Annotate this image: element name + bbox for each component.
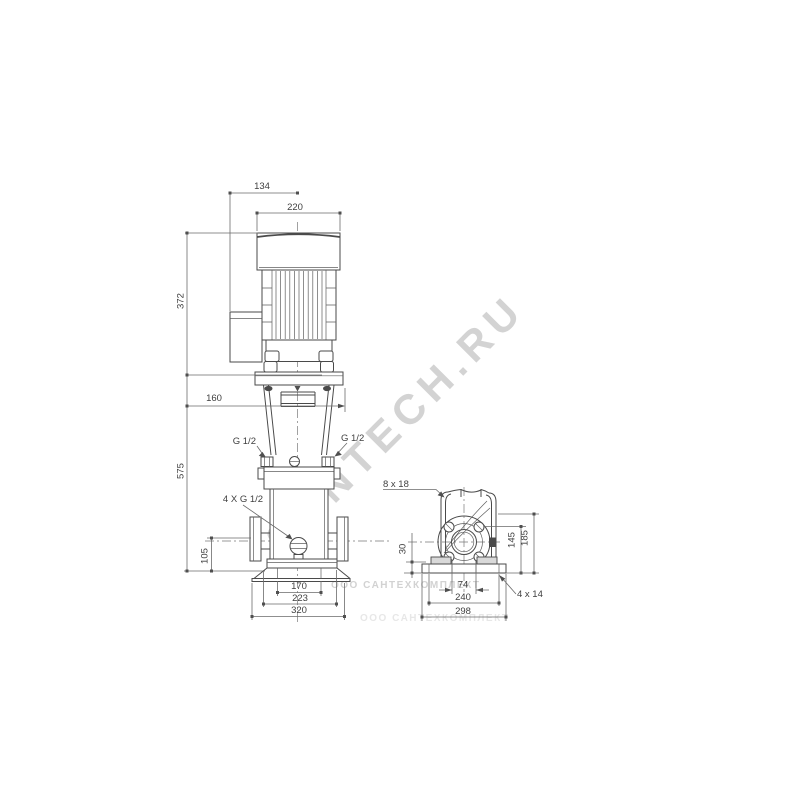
motor-fan-cap — [257, 233, 340, 270]
dim-label-298: 298 — [455, 606, 471, 617]
front-view: 134 220 372 575 160 105 170 223 — [176, 181, 393, 623]
dim-label-240: 240 — [455, 592, 471, 603]
plug-label-left: G 1/2 — [233, 436, 256, 447]
watermark-row2-text: ООО САНТЕХКОМПЛЕКТ — [360, 613, 510, 624]
dim-label-160: 160 — [206, 393, 222, 404]
dim-label-170: 170 — [291, 581, 307, 592]
coupling-guard — [264, 385, 335, 455]
dim-label-320: 320 — [291, 605, 307, 616]
technical-drawing-canvas: SANTECH.RU ООО САНТЕХКОМПЛЕКТ ООО САНТЕХ… — [0, 0, 800, 800]
motor-stool-plate — [255, 362, 343, 386]
dim-label-134: 134 — [254, 181, 270, 192]
dim-label-30: 30 — [398, 544, 409, 555]
dim-label-223: 223 — [292, 593, 308, 604]
dim-label-185: 185 — [520, 530, 531, 546]
drain-label: 4 X G 1/2 — [223, 494, 263, 505]
dim-label-145: 145 — [507, 532, 518, 548]
pump-head-block — [258, 467, 340, 489]
flange-right — [328, 517, 348, 561]
pump-head-plugs — [261, 457, 334, 467]
end-dimensions: 8 x 18 30 145 185 74 240 298 — [383, 479, 543, 621]
dim-label-105: 105 — [200, 548, 211, 564]
end-view: 8 x 18 30 145 185 74 240 298 — [383, 479, 543, 621]
pump-dimensional-drawing: SANTECH.RU ООО САНТЕХКОМПЛЕКТ ООО САНТЕХ… — [0, 0, 800, 800]
dim-label-220: 220 — [287, 202, 303, 213]
plug-label-right: G 1/2 — [341, 433, 364, 444]
pump-base — [252, 559, 350, 582]
dim-label-74: 74 — [458, 580, 469, 591]
motor-endshield — [265, 340, 333, 362]
dim-label-575: 575 — [176, 463, 187, 479]
dim-label-372: 372 — [176, 293, 187, 309]
base-holes-label: 4 x 14 — [517, 589, 543, 600]
flange-holes-label: 8 x 18 — [383, 479, 409, 490]
motor-fins — [262, 270, 336, 340]
terminal-box — [230, 312, 262, 362]
